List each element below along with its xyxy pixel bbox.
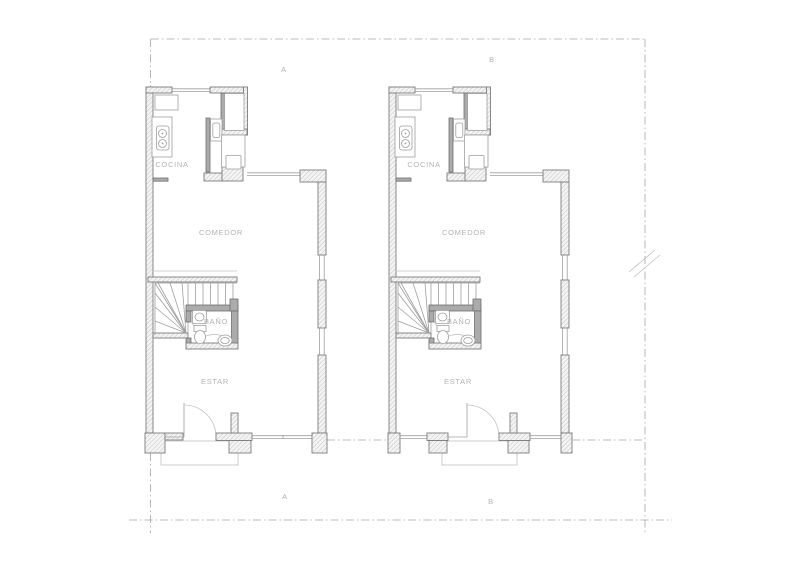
room-label-estar-b: ESTAR	[444, 377, 472, 386]
wall-block	[312, 433, 327, 453]
unit-a-entrance	[145, 403, 327, 453]
unit-a-plan	[146, 87, 326, 433]
wall-bar	[427, 433, 448, 441]
room-label-cocina-a: COCINA	[155, 160, 188, 169]
wall-block	[429, 441, 447, 454]
room-label-bano-a: BAÑO	[204, 317, 228, 326]
wall-stub-up	[510, 413, 517, 433]
room-label-cocina-b: COCINA	[407, 160, 440, 169]
wall-block	[229, 441, 251, 454]
grid-label-a-bottom: A	[282, 492, 288, 501]
grid-label-a-top: A	[281, 65, 287, 74]
wall-bar	[499, 433, 530, 441]
break-mark-icon	[629, 250, 660, 277]
door-swing-arc	[467, 405, 499, 437]
wall-stub-up	[231, 413, 238, 433]
grid-label-b-top: B	[489, 55, 495, 64]
door-swing-arc	[184, 405, 216, 437]
unit-b-plan	[389, 87, 569, 433]
wall-block	[145, 433, 165, 453]
wall-stub	[165, 433, 183, 440]
room-label-bano-b: BAÑO	[447, 317, 471, 326]
room-label-estar-a: ESTAR	[201, 377, 229, 386]
unit-b-porch	[442, 441, 517, 465]
wall-block	[388, 433, 400, 453]
room-label-comedor-b: COMEDOR	[442, 228, 486, 237]
drawing-sheet: A COCINA COMEDOR BAÑO ESTAR A B COCINA C…	[0, 0, 800, 571]
room-label-comedor-a: COMEDOR	[199, 228, 243, 237]
wall-bar	[216, 433, 252, 441]
floor-plan: A COCINA COMEDOR BAÑO ESTAR A B COCINA C…	[0, 0, 800, 571]
wall-block	[561, 433, 572, 453]
wall-block	[508, 441, 529, 454]
unit-a-porch	[161, 441, 238, 465]
grid-label-b-bottom: B	[488, 497, 494, 506]
unit-b-entrance	[388, 403, 572, 453]
